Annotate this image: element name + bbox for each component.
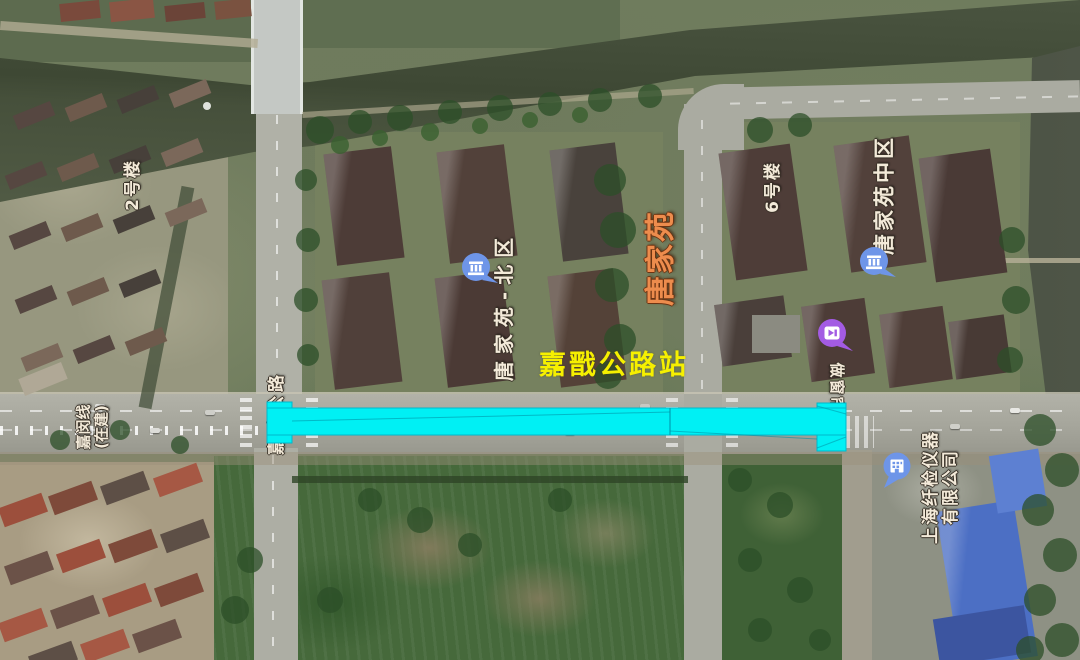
tree-canopy bbox=[594, 164, 626, 196]
tree-canopy bbox=[1043, 538, 1077, 572]
vehicle bbox=[150, 428, 160, 433]
tree-canopy bbox=[638, 84, 662, 108]
company-name-line2: 有限公司 bbox=[941, 430, 961, 544]
tree-canopy bbox=[1002, 286, 1030, 314]
apartment-roof bbox=[323, 146, 404, 265]
tree-canopy bbox=[738, 548, 762, 572]
villa-roof bbox=[80, 629, 130, 660]
villa-roof bbox=[13, 101, 56, 130]
tree-canopy bbox=[472, 118, 488, 134]
villa-roof bbox=[153, 463, 203, 498]
map-canvas[interactable]: 唐家苑 唐家苑-北区 唐家苑中区 2号楼 6号楼 嘉闵线 (在建) 嘉戬公路 做… bbox=[0, 0, 1080, 660]
label-building-6: 6号楼 bbox=[763, 161, 783, 213]
tree-canopy bbox=[1024, 414, 1056, 446]
tree-canopy bbox=[809, 629, 831, 651]
villa-roof bbox=[65, 93, 108, 122]
tree-canopy bbox=[997, 347, 1023, 373]
terrain-decorations bbox=[0, 0, 1080, 660]
villa-roof bbox=[154, 573, 204, 608]
vehicle bbox=[950, 424, 960, 429]
tree-canopy bbox=[595, 268, 629, 302]
metro-line-name: 嘉闵线 bbox=[75, 404, 93, 449]
apartment-roof bbox=[322, 272, 403, 389]
villa-roof bbox=[28, 641, 78, 660]
label-subdistrict-central: 唐家苑中区 bbox=[873, 135, 898, 255]
tree-canopy bbox=[600, 212, 636, 248]
tree-canopy bbox=[358, 488, 382, 512]
tree-canopy bbox=[1045, 623, 1079, 657]
house-roof bbox=[59, 0, 101, 22]
vehicle bbox=[1010, 408, 1020, 413]
house-roof bbox=[214, 0, 252, 20]
tree-canopy bbox=[306, 116, 334, 144]
tree-canopy bbox=[317, 587, 343, 613]
tree-canopy bbox=[331, 136, 349, 154]
tree-canopy bbox=[407, 507, 433, 533]
villa-roof bbox=[57, 153, 100, 182]
tree-canopy bbox=[788, 113, 812, 137]
metro-line-status: (在建) bbox=[93, 404, 111, 449]
tree-canopy bbox=[110, 420, 130, 440]
tree-canopy bbox=[999, 227, 1025, 253]
villa-roof bbox=[56, 539, 106, 574]
tree-canopy bbox=[221, 596, 249, 624]
villa-roof bbox=[161, 138, 204, 167]
community-pin-central[interactable] bbox=[858, 246, 898, 286]
tree-canopy bbox=[1024, 584, 1056, 616]
tree-canopy bbox=[487, 95, 513, 121]
apartment-roof bbox=[879, 306, 953, 388]
villa-roof bbox=[119, 269, 162, 298]
tree-canopy bbox=[237, 547, 263, 573]
station-footprint-overlay[interactable] bbox=[240, 393, 860, 463]
tree-canopy bbox=[748, 618, 772, 642]
villa-roof bbox=[67, 277, 110, 306]
villa-roof bbox=[15, 285, 58, 314]
villa-roof bbox=[165, 198, 208, 227]
villa-roof bbox=[61, 213, 104, 242]
villa-roof bbox=[160, 519, 210, 554]
tree-canopy bbox=[1045, 453, 1079, 487]
tree-canopy bbox=[296, 228, 320, 252]
apartment-roof bbox=[919, 149, 1008, 283]
community-icon bbox=[460, 252, 500, 288]
villa-roof bbox=[108, 529, 158, 564]
company-pin[interactable] bbox=[880, 452, 916, 494]
tree-canopy bbox=[348, 110, 372, 134]
community-icon bbox=[858, 246, 898, 282]
villa-roof bbox=[100, 471, 150, 506]
villa-roof bbox=[48, 481, 98, 516]
tree-canopy bbox=[438, 100, 462, 124]
tree-canopy bbox=[171, 436, 189, 454]
dock bbox=[203, 102, 211, 110]
villa-roof bbox=[125, 327, 168, 356]
tree-canopy bbox=[728, 468, 752, 492]
shop-icon bbox=[816, 318, 856, 354]
label-metro-line: 嘉闵线 (在建) bbox=[75, 404, 110, 449]
villa-roof bbox=[132, 619, 182, 654]
villa-roof bbox=[117, 85, 160, 114]
villa-roof bbox=[9, 221, 52, 250]
house-roof bbox=[109, 0, 155, 22]
tree-canopy bbox=[372, 130, 388, 146]
company-icon bbox=[880, 452, 916, 490]
villa-roof bbox=[50, 595, 100, 630]
company-name-line1: 上海纤检仪器 bbox=[921, 430, 941, 544]
tree-canopy bbox=[387, 105, 413, 131]
label-building-2: 2号楼 bbox=[123, 159, 143, 211]
tree-canopy bbox=[787, 577, 813, 603]
house-roof bbox=[164, 2, 205, 22]
station-label: 嘉戬公路站 bbox=[539, 350, 689, 382]
villa-roof bbox=[4, 551, 54, 586]
tree-canopy bbox=[50, 430, 70, 450]
shop-pin[interactable] bbox=[816, 318, 856, 358]
tree-canopy bbox=[548, 488, 572, 512]
villa-roof bbox=[5, 161, 48, 190]
villa-roof bbox=[0, 608, 48, 643]
villa-roof bbox=[102, 583, 152, 618]
tree-canopy bbox=[538, 92, 562, 116]
tree-canopy bbox=[297, 344, 319, 366]
compound-roof bbox=[752, 315, 800, 353]
tree-canopy bbox=[458, 533, 482, 557]
villa-roof bbox=[0, 493, 48, 528]
villa-roof bbox=[73, 335, 116, 364]
tree-canopy bbox=[767, 492, 793, 518]
tree-canopy bbox=[522, 112, 538, 128]
tree-canopy bbox=[747, 117, 773, 143]
tree-canopy bbox=[295, 169, 317, 191]
area-label-tangjiayuan: 唐家苑 bbox=[643, 210, 678, 306]
label-company: 上海纤检仪器 有限公司 bbox=[921, 430, 961, 544]
tree-canopy bbox=[294, 288, 318, 312]
tree-canopy bbox=[588, 88, 612, 112]
community-pin-north[interactable] bbox=[460, 252, 500, 292]
tree-canopy bbox=[572, 107, 588, 123]
tree-canopy bbox=[1016, 636, 1044, 660]
vehicle bbox=[205, 410, 215, 415]
tree-canopy bbox=[1022, 494, 1054, 526]
tree-canopy bbox=[421, 123, 439, 141]
